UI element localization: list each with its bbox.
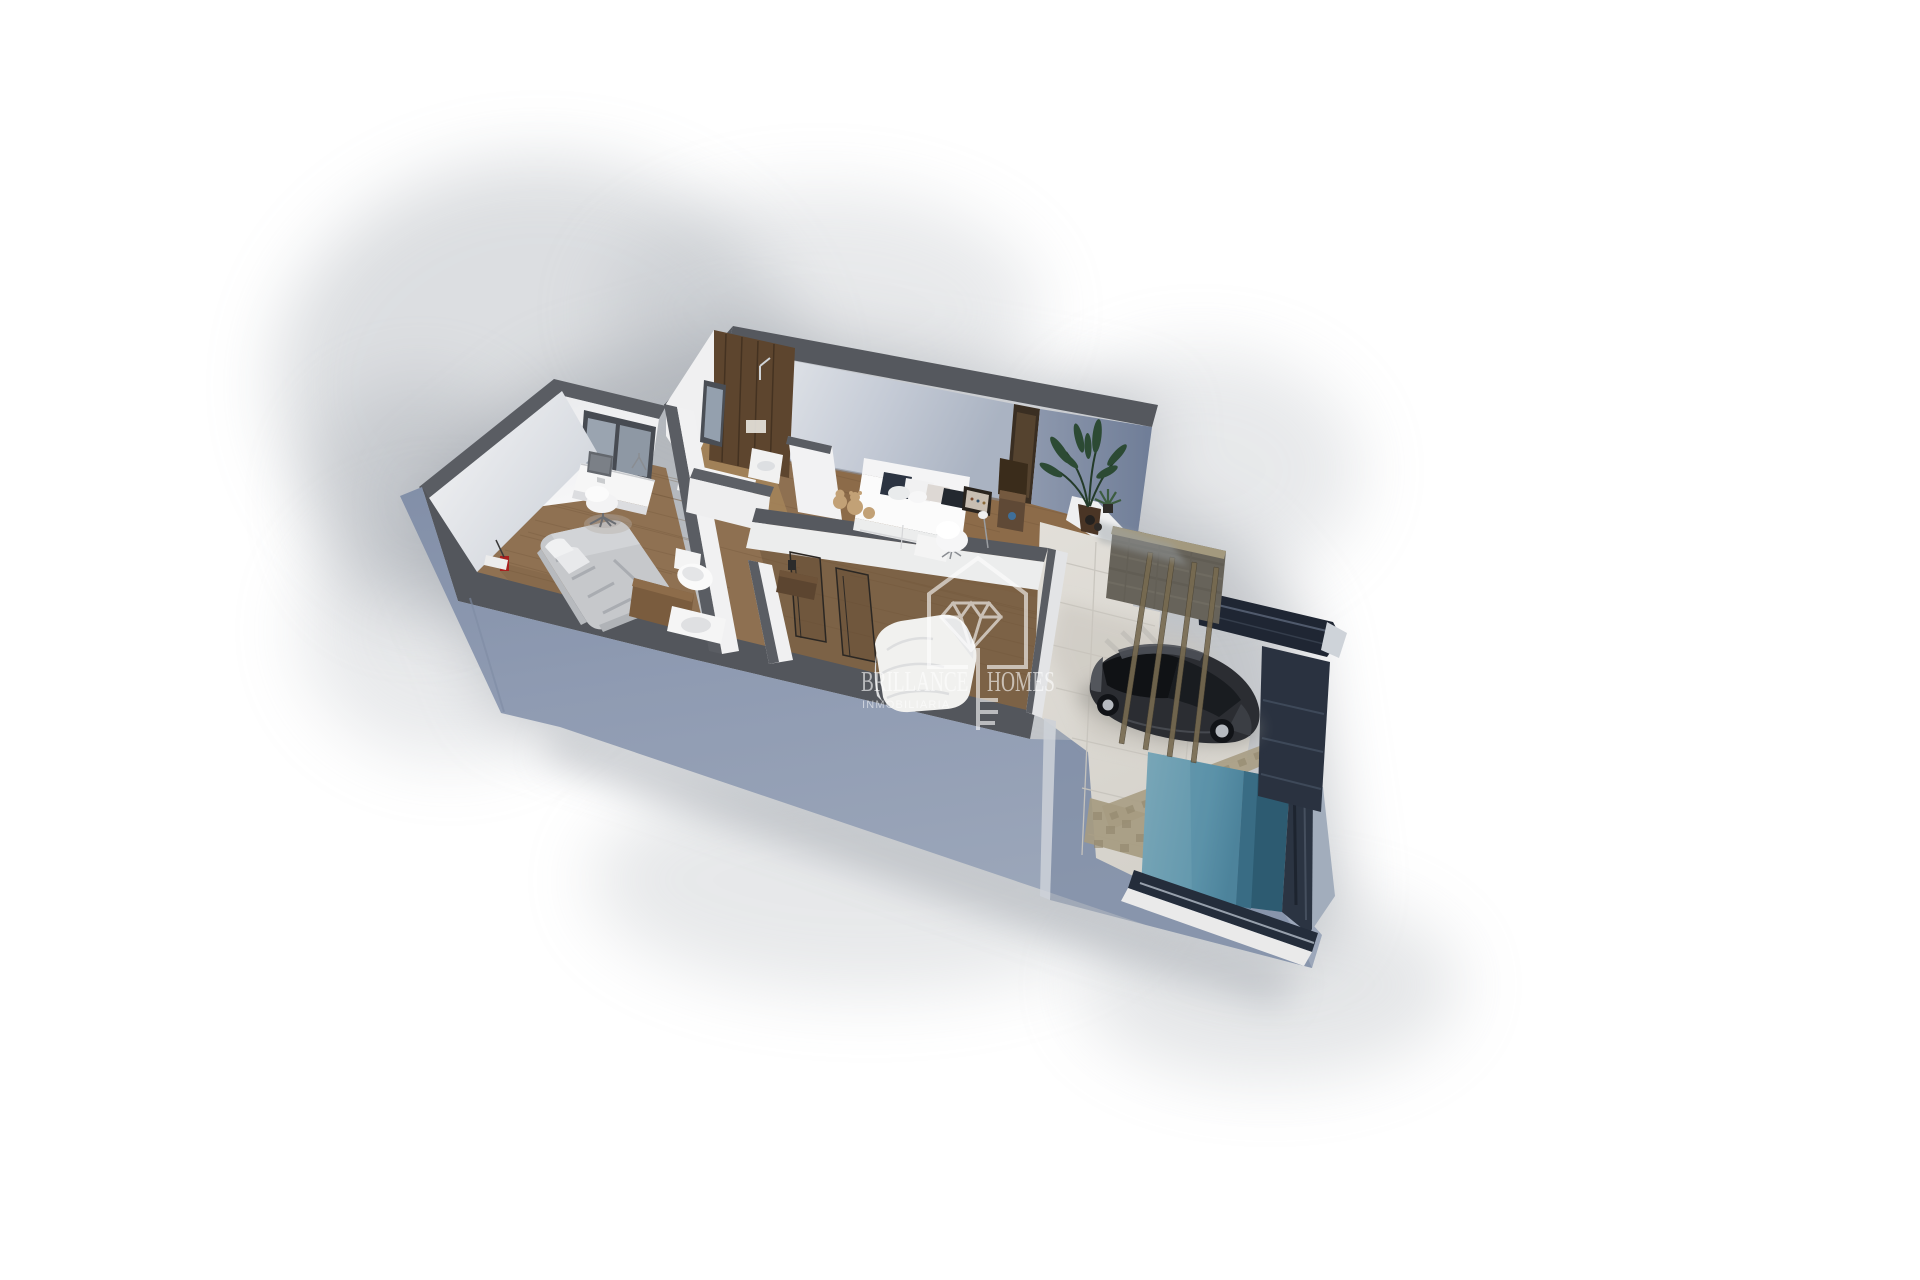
svg-text:HOMES: HOMES [987,666,1055,698]
svg-text:BRILLANCE: BRILLANCE [861,666,968,698]
svg-text:INMOBILIARIA: INMOBILIARIA [862,699,950,711]
